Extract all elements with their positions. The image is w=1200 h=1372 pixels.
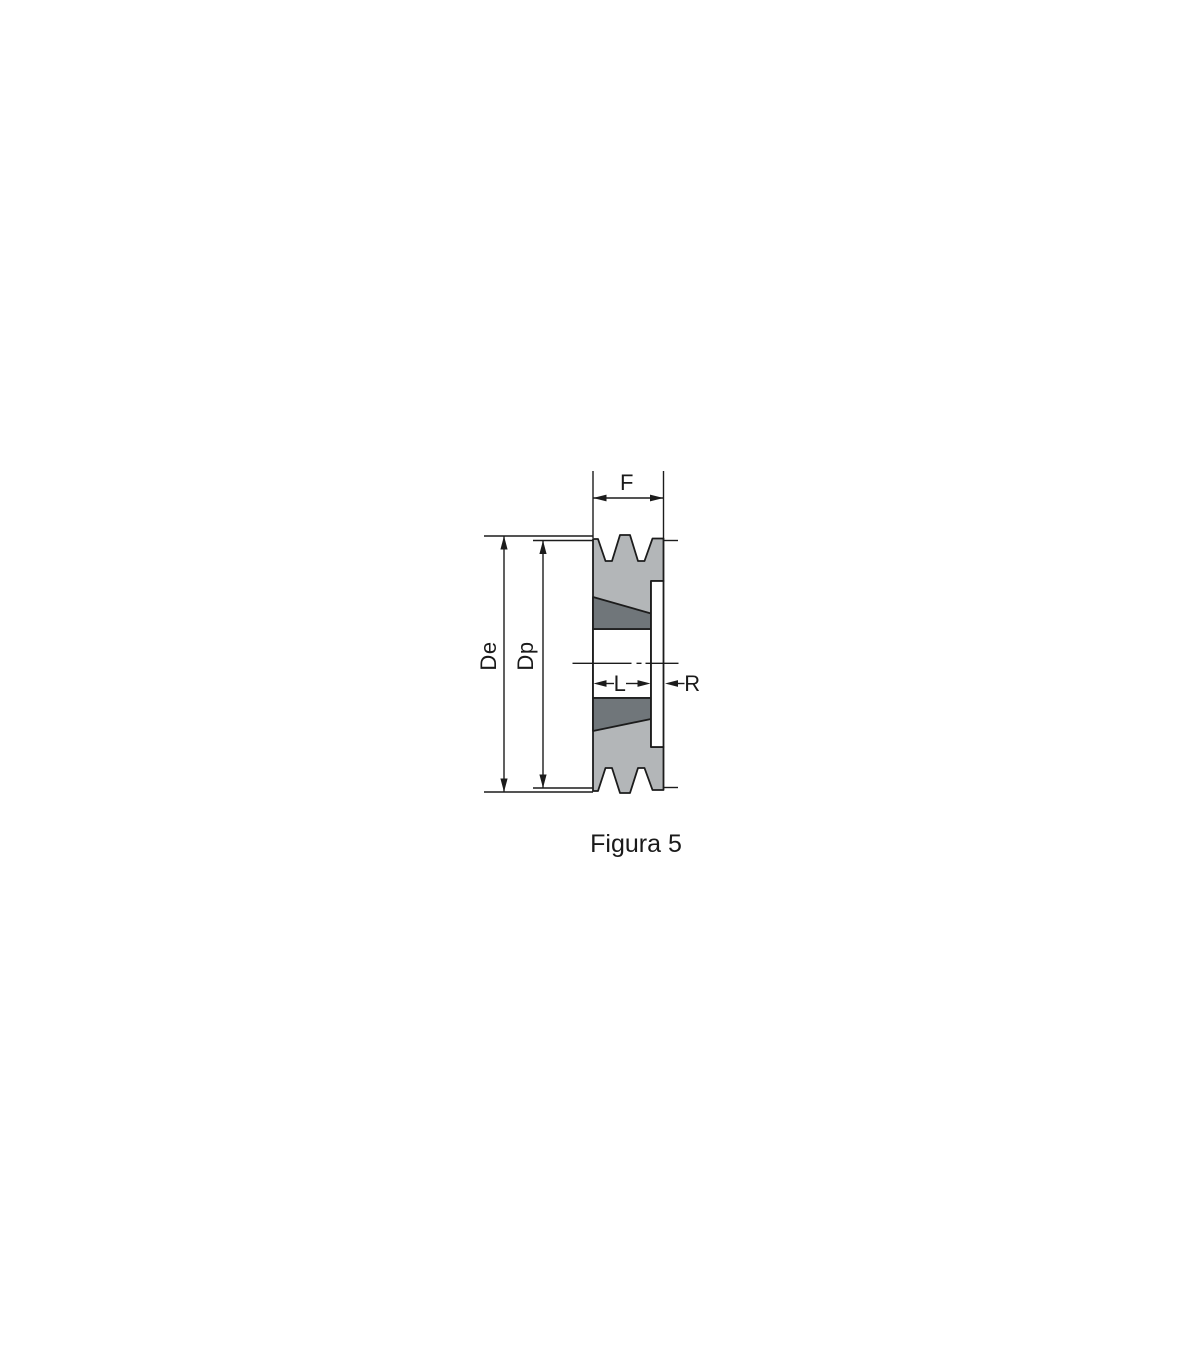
- dim-Dp-arrow-top: [539, 541, 546, 555]
- dim-Dp-arrow-bottom: [539, 775, 546, 789]
- label-outer-diameter: De: [476, 641, 501, 670]
- dim-De-arrow-bottom: [500, 779, 507, 793]
- dim-R-arrow: [665, 680, 678, 687]
- dim-F-arrow-right: [650, 495, 664, 502]
- label-pitch-diameter: Dp: [513, 641, 538, 670]
- label-face-width: F: [620, 470, 634, 495]
- figure-caption: Figura 5: [590, 830, 682, 858]
- dimension-R: [665, 680, 685, 687]
- dimension-labels: F De Dp L R: [476, 470, 701, 696]
- figure-page: F De Dp L R Figura 5: [0, 0, 1200, 1372]
- dim-F-arrow-left: [593, 495, 607, 502]
- dim-De-arrow-top: [500, 536, 507, 550]
- label-hub-length: L: [614, 671, 627, 696]
- label-recess-width: R: [684, 671, 700, 696]
- pulley-figure: F De Dp L R Figura 5: [0, 0, 1200, 1372]
